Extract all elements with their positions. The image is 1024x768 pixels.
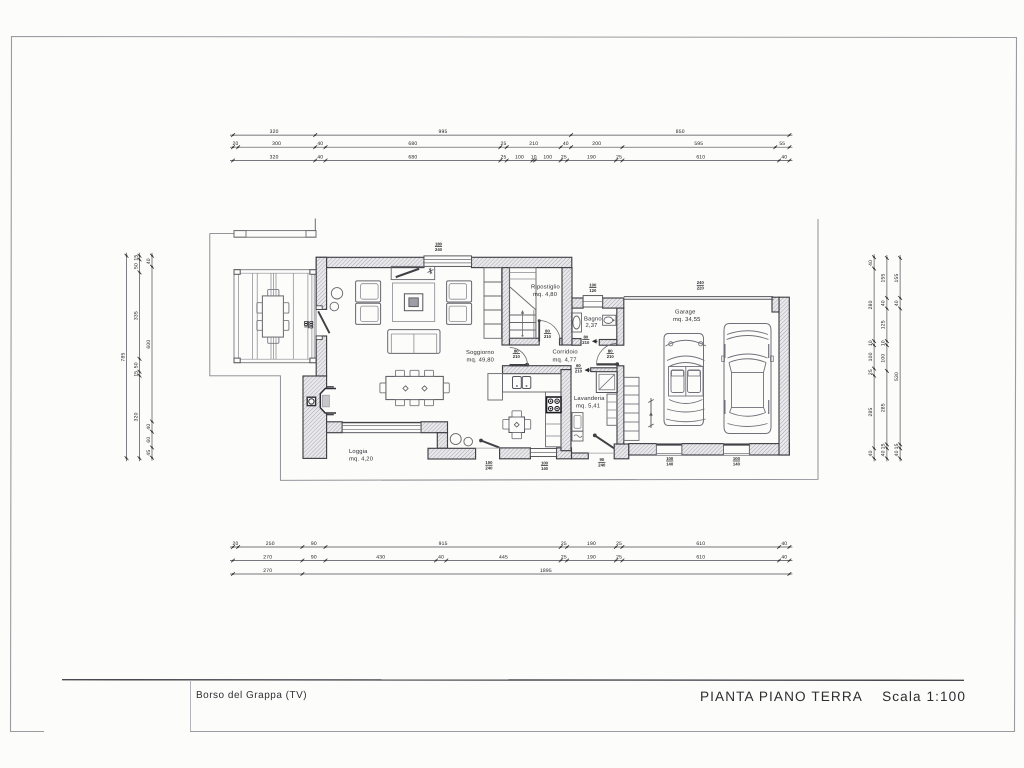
svg-text:45: 45: [146, 450, 152, 456]
svg-text:190: 190: [587, 154, 596, 160]
svg-text:40: 40: [146, 424, 152, 430]
svg-text:320: 320: [270, 154, 279, 160]
svg-text:50: 50: [133, 362, 139, 368]
svg-text:155: 155: [881, 274, 887, 283]
svg-text:140: 140: [541, 467, 548, 472]
svg-text:mq. 4,77: mq. 4,77: [553, 357, 577, 363]
svg-text:90: 90: [311, 554, 317, 560]
svg-text:Ripostiglio: Ripostiglio: [531, 284, 560, 290]
svg-text:100: 100: [541, 461, 548, 466]
svg-text:100: 100: [881, 354, 887, 363]
svg-text:40: 40: [563, 141, 569, 147]
svg-text:20: 20: [233, 541, 239, 547]
svg-text:25: 25: [561, 541, 567, 547]
svg-text:40: 40: [868, 450, 874, 456]
svg-text:PIANTA PIANO TERRA: PIANTA PIANO TERRA: [700, 690, 863, 705]
svg-text:25: 25: [868, 369, 874, 375]
svg-text:40: 40: [781, 154, 787, 160]
svg-text:mq. 4,80: mq. 4,80: [533, 291, 557, 297]
svg-text:25: 25: [616, 541, 622, 547]
svg-text:530: 530: [894, 372, 900, 381]
svg-text:300: 300: [272, 141, 281, 147]
svg-text:25: 25: [501, 141, 507, 147]
svg-text:40: 40: [146, 258, 152, 264]
svg-text:40: 40: [438, 554, 444, 560]
svg-text:140: 140: [666, 462, 673, 467]
svg-text:610: 610: [696, 541, 705, 547]
svg-text:210: 210: [529, 141, 538, 147]
svg-text:40: 40: [317, 154, 323, 160]
svg-text:2,37: 2,37: [586, 322, 598, 328]
svg-text:80: 80: [583, 335, 588, 340]
svg-text:Corridoio: Corridoio: [553, 349, 578, 355]
svg-text:680: 680: [408, 141, 417, 147]
svg-text:80: 80: [514, 349, 519, 354]
svg-text:10: 10: [868, 340, 874, 346]
svg-text:15: 15: [894, 443, 900, 449]
svg-text:320: 320: [270, 129, 279, 135]
svg-text:120: 120: [589, 289, 596, 294]
svg-text:240: 240: [598, 463, 605, 468]
svg-text:60: 60: [576, 364, 581, 369]
svg-text:610: 610: [696, 554, 705, 560]
svg-text:180: 180: [435, 242, 442, 247]
svg-text:25: 25: [501, 154, 507, 160]
svg-text:250: 250: [266, 541, 275, 547]
svg-text:15: 15: [133, 371, 139, 377]
svg-text:90: 90: [311, 541, 317, 547]
svg-text:995: 995: [439, 129, 448, 135]
svg-text:55: 55: [779, 141, 785, 147]
svg-text:220: 220: [697, 286, 704, 291]
svg-text:50: 50: [133, 263, 139, 269]
svg-text:240: 240: [435, 248, 442, 253]
svg-text:100: 100: [485, 461, 492, 466]
svg-text:40: 40: [894, 450, 900, 456]
svg-text:20: 20: [233, 141, 239, 147]
svg-text:200: 200: [592, 141, 601, 147]
svg-text:Garage: Garage: [675, 309, 696, 315]
svg-text:240: 240: [485, 466, 492, 471]
svg-text:210: 210: [513, 354, 520, 359]
svg-text:915: 915: [439, 541, 448, 547]
svg-text:Lavanderia: Lavanderia: [574, 396, 605, 402]
svg-text:40: 40: [317, 141, 323, 147]
svg-text:320: 320: [133, 412, 139, 421]
svg-text:Bagno: Bagno: [584, 316, 602, 322]
svg-text:270: 270: [263, 568, 272, 574]
svg-text:210: 210: [607, 355, 614, 360]
svg-text:100: 100: [543, 154, 552, 160]
svg-text:600: 600: [146, 340, 152, 349]
svg-text:285: 285: [881, 403, 887, 412]
svg-text:90: 90: [599, 458, 604, 463]
svg-text:100: 100: [515, 154, 524, 160]
svg-text:280: 280: [868, 300, 874, 309]
svg-text:80: 80: [608, 349, 613, 354]
svg-text:210: 210: [544, 335, 551, 340]
svg-text:15: 15: [881, 443, 887, 449]
svg-text:850: 850: [676, 129, 685, 135]
svg-text:mq. 4,20: mq. 4,20: [349, 456, 373, 462]
svg-text:210: 210: [575, 369, 582, 374]
svg-text:60: 60: [146, 437, 152, 443]
svg-text:335: 335: [133, 311, 139, 320]
svg-text:25: 25: [616, 154, 622, 160]
svg-text:Soggiorno: Soggiorno: [466, 349, 494, 355]
svg-text:125: 125: [881, 320, 887, 329]
svg-text:785: 785: [120, 353, 126, 362]
svg-text:25: 25: [561, 154, 567, 160]
svg-text:155: 155: [894, 274, 900, 283]
svg-text:240: 240: [697, 281, 704, 286]
svg-text:680: 680: [408, 154, 417, 160]
svg-text:430: 430: [376, 554, 385, 560]
svg-text:270: 270: [263, 554, 272, 560]
svg-text:285: 285: [868, 408, 874, 417]
svg-text:40: 40: [881, 300, 887, 306]
svg-text:Scala 1:100: Scala 1:100: [882, 689, 966, 704]
svg-text:610: 610: [696, 154, 705, 160]
svg-text:1895: 1895: [540, 568, 552, 574]
svg-text:100: 100: [733, 457, 740, 462]
svg-text:25: 25: [561, 554, 567, 560]
svg-text:210: 210: [582, 341, 589, 346]
svg-text:445: 445: [499, 554, 508, 560]
svg-text:40: 40: [868, 260, 874, 266]
svg-text:40: 40: [781, 554, 787, 560]
svg-text:40: 40: [781, 541, 787, 547]
svg-text:10: 10: [531, 154, 537, 160]
svg-text:Borso del Grappa (TV): Borso del Grappa (TV): [196, 690, 307, 701]
svg-text:40: 40: [894, 300, 900, 306]
svg-text:100: 100: [868, 352, 874, 361]
svg-text:25: 25: [616, 554, 622, 560]
svg-text:190: 190: [587, 541, 596, 547]
svg-text:100: 100: [666, 457, 673, 462]
svg-text:80: 80: [545, 329, 550, 334]
svg-text:40: 40: [881, 450, 887, 456]
svg-text:190: 190: [587, 554, 596, 560]
svg-text:100: 100: [589, 283, 596, 288]
svg-text:mq. 49,80: mq. 49,80: [467, 357, 495, 363]
svg-text:10: 10: [881, 340, 887, 346]
svg-text:mq. 34,55: mq. 34,55: [673, 316, 701, 322]
svg-text:Loggia: Loggia: [349, 448, 368, 454]
svg-text:15: 15: [133, 255, 139, 261]
svg-text:mq. 5,41: mq. 5,41: [576, 403, 600, 409]
svg-text:595: 595: [694, 141, 703, 147]
svg-text:140: 140: [733, 462, 740, 467]
